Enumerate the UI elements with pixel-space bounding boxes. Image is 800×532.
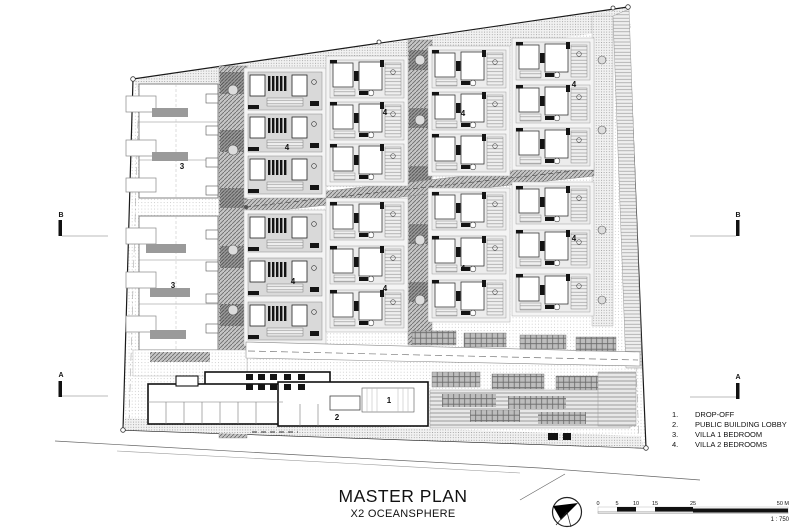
scale-tick: 5 xyxy=(615,501,618,507)
master-plan-drawing: 3 3 4 4 4 4 4 4 4 4 1 2 B B A A xyxy=(0,0,800,532)
page-subtitle: X2 OCEANSPHERE xyxy=(350,508,455,520)
scale-tick: 50 M xyxy=(777,501,790,507)
legend-label: DROP-OFF xyxy=(695,410,735,419)
section-letter: B xyxy=(735,212,740,219)
legend-num: 2. xyxy=(672,420,678,429)
master-plan-sheet: 3 3 4 4 4 4 4 4 4 4 1 2 B B A A xyxy=(0,0,800,532)
label-villa2: 4 xyxy=(285,143,290,152)
legend-num: 1. xyxy=(672,410,678,419)
scale-tick: 15 xyxy=(652,501,658,507)
section-marker-b-left: B xyxy=(58,212,108,236)
label-villa2: 4 xyxy=(461,264,466,273)
legend-num: 4. xyxy=(672,440,678,449)
page-title: MASTER PLAN xyxy=(339,486,468,506)
scale-tick: 10 xyxy=(633,501,639,507)
scale-tick: 25 xyxy=(690,501,696,507)
north-arrow-icon xyxy=(553,498,582,528)
label-villa2: 4 xyxy=(461,109,466,118)
villa-1br-block xyxy=(126,84,218,350)
label-lobby: 2 xyxy=(335,413,340,422)
scale-ratio: 1 : 750 xyxy=(771,517,790,523)
label-villa2: 4 xyxy=(383,284,388,293)
section-letter: A xyxy=(58,372,63,379)
legend-num: 3. xyxy=(672,430,678,439)
label-villa2: 4 xyxy=(572,234,577,243)
legend-label: PUBLIC BUILDING LOBBY xyxy=(695,420,787,429)
section-marker-a-right: A xyxy=(690,374,741,399)
section-marker-b-right: B xyxy=(690,212,741,236)
label-villa2: 4 xyxy=(572,80,577,89)
scale-tick: 0 xyxy=(596,501,599,507)
legend-label: VILLA 1 BEDROOM xyxy=(695,430,762,439)
legend: 1. DROP-OFF 2. PUBLIC BUILDING LOBBY 3. … xyxy=(672,410,787,449)
legend-label: VILLA 2 BEDROOMS xyxy=(695,440,767,449)
label-villa2: 4 xyxy=(383,108,388,117)
label-dropoff: 1 xyxy=(387,396,392,405)
label-villa1-bottom: 3 xyxy=(171,281,176,290)
section-letter: A xyxy=(735,374,740,381)
scale-bar: 0 5 10 15 25 50 M 1 : 750 xyxy=(596,501,789,523)
title-block: MASTER PLAN X2 OCEANSPHERE xyxy=(339,486,468,520)
label-villa2: 4 xyxy=(291,277,296,286)
section-marker-a-left: A xyxy=(58,372,108,397)
section-letter: B xyxy=(58,212,63,219)
label-villa1-top: 3 xyxy=(180,162,185,171)
villa-1br-group-top xyxy=(126,84,218,198)
